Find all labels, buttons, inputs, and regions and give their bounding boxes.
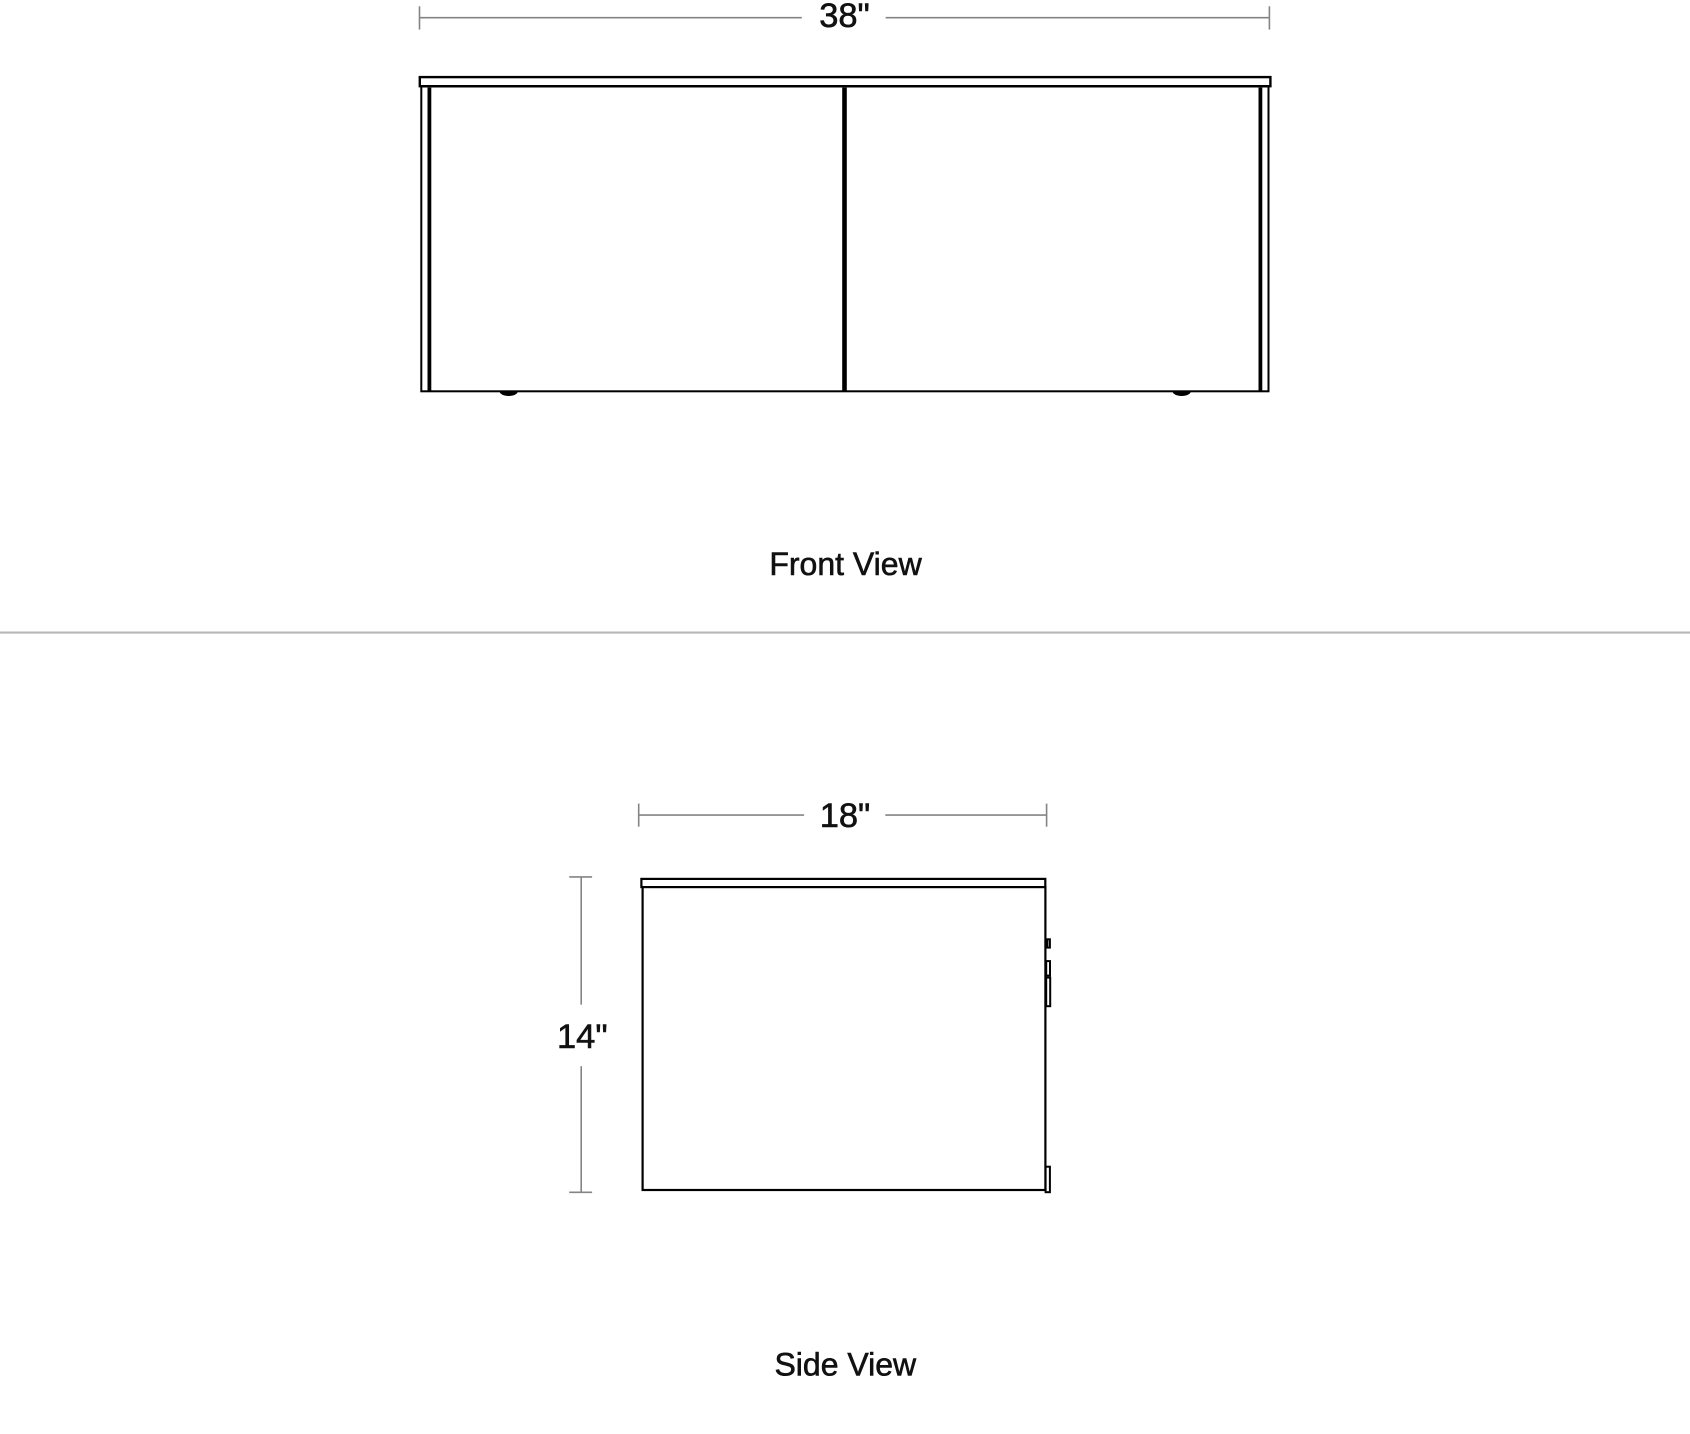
svg-text:Front View: Front View: [769, 546, 922, 582]
svg-text:38": 38": [819, 0, 870, 35]
svg-text:18": 18": [820, 797, 871, 835]
svg-text:14": 14": [557, 1018, 608, 1056]
svg-text:Side View: Side View: [774, 1346, 917, 1382]
